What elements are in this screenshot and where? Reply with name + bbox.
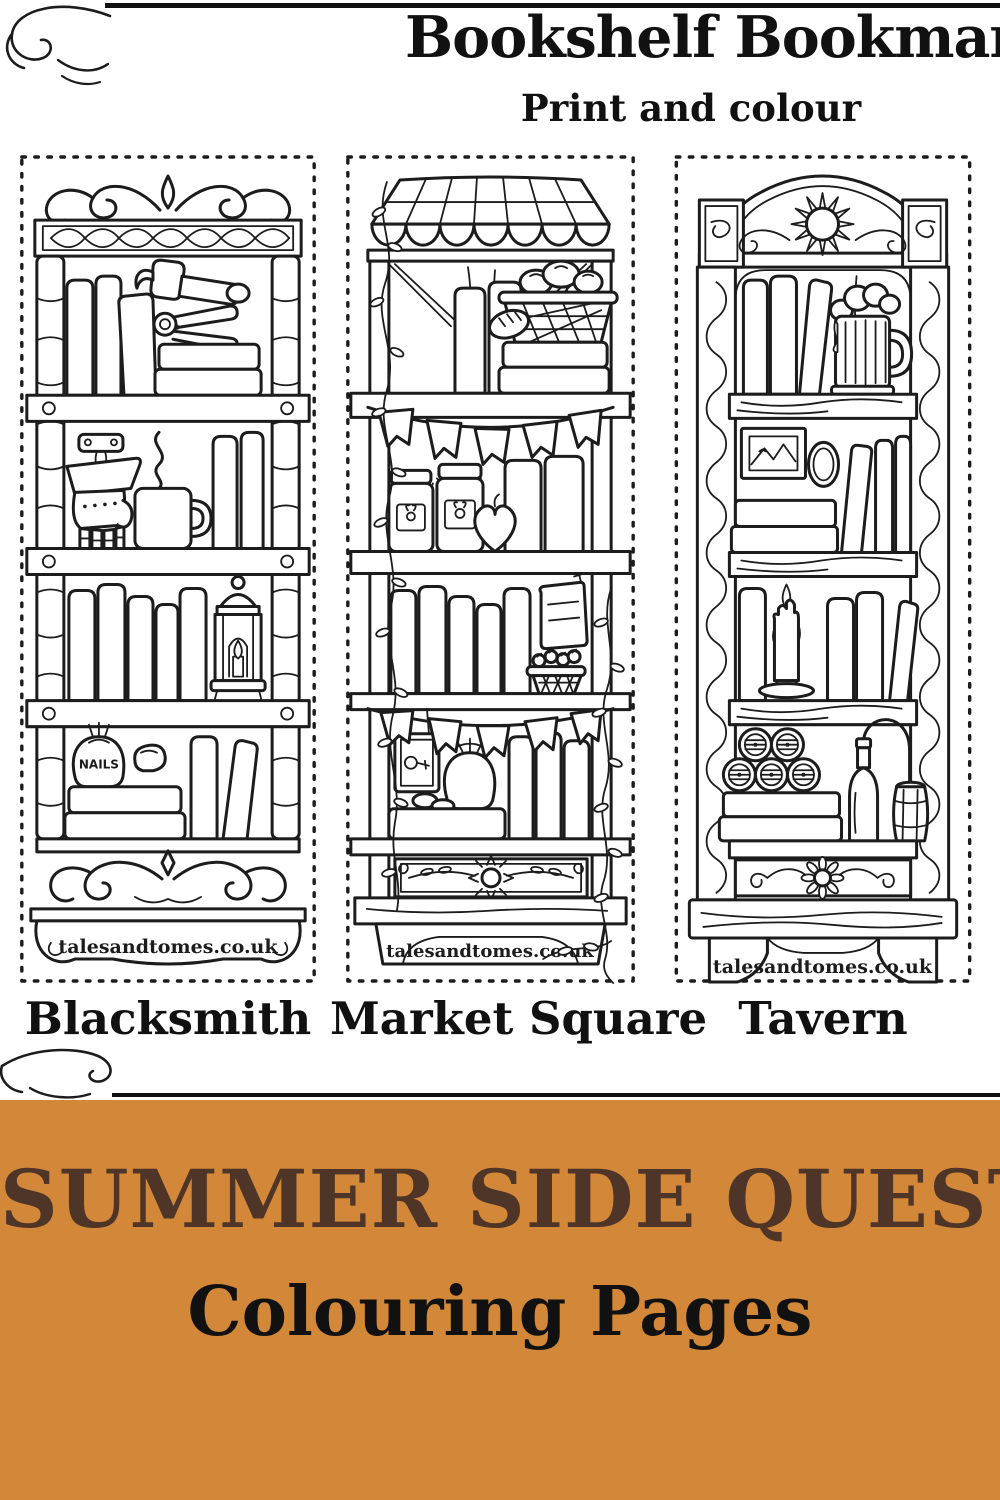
nails-sack-icon: NAILS	[73, 723, 123, 787]
base-pediment: talesandtomes.co.uk	[376, 924, 605, 964]
shelf2-books	[842, 436, 911, 552]
barrel-kegs-icon	[723, 729, 819, 791]
tavern-art: talesandtomes.co.uk	[670, 152, 976, 986]
shelf4-books	[509, 733, 589, 839]
bottom-rule	[112, 1093, 1000, 1097]
shelf2-stacked-books	[731, 500, 837, 552]
shelf-board-1	[27, 395, 309, 421]
mug-icon	[135, 488, 211, 548]
banner-title: SUMMER SIDE QUEST	[0, 1152, 1000, 1246]
shelf-board-4	[729, 841, 916, 858]
shelf4-stacked-books	[719, 793, 841, 841]
shelf1-books	[743, 276, 831, 394]
shelf-board-2	[729, 552, 916, 576]
page-subtitle: Print and colour	[395, 86, 987, 130]
mirror-icon	[808, 442, 838, 486]
sunflower-panel-icon	[735, 857, 910, 899]
footer-banner: SUMMER SIDE QUEST Colouring Pages	[0, 1100, 1000, 1500]
scroll-panel-icon	[51, 851, 286, 903]
scrollwork-crest-icon	[35, 176, 301, 256]
strawberry-basket-icon	[527, 650, 585, 694]
shelf-board-3	[27, 701, 309, 727]
label-tavern: Tavern	[670, 992, 976, 1045]
melting-candle-icon	[759, 585, 813, 698]
base-feet: talesandtomes.co.uk	[709, 938, 936, 982]
banner-subtitle: Colouring Pages	[0, 1272, 1000, 1352]
website-text: talesandtomes.co.uk	[713, 956, 933, 978]
shelf4-books	[191, 737, 257, 839]
shelf4-horizontal-book	[389, 809, 505, 839]
shelf-board-2	[27, 548, 309, 574]
jam-jars-icon	[389, 464, 483, 551]
bookmark-market-square: talesandtomes.co.uk	[341, 152, 640, 986]
floral-panel-icon	[395, 856, 587, 900]
stone-icon	[135, 745, 166, 771]
beer-tankard-icon	[831, 284, 912, 394]
blacksmith-art: NAILS talesandtomes.co.uk	[16, 152, 320, 986]
steam-icon	[156, 432, 163, 488]
label-blacksmith: Blacksmith	[16, 992, 320, 1045]
barrel-icon	[894, 782, 928, 841]
shelf1-books	[67, 276, 156, 395]
shelf3-books	[69, 585, 206, 701]
gauntlet-icon	[67, 458, 141, 558]
scrollwork-footer-icon: talesandtomes.co.uk	[31, 909, 305, 964]
hanging-parchment-icon	[540, 574, 587, 649]
page-title: Bookshelf Bookmarks	[405, 4, 997, 71]
shelf3-books	[391, 587, 530, 694]
base-board	[689, 900, 956, 938]
market-square-art: talesandtomes.co.uk	[341, 152, 640, 986]
shelf-board-1	[729, 394, 916, 418]
corner-flourish-top-left	[0, 4, 112, 104]
label-market-square: Market Square	[330, 992, 654, 1045]
shelf2-books	[505, 456, 583, 551]
nails-sack-label: NAILS	[79, 758, 119, 772]
awning-icon	[372, 177, 609, 245]
shelf2-books	[213, 432, 263, 548]
bread-basket-icon	[486, 261, 617, 343]
bookmark-blacksmith: NAILS talesandtomes.co.uk	[16, 152, 320, 986]
shelf-board-3	[351, 694, 630, 710]
shelf3-books	[739, 589, 917, 701]
shelf4-stacked-books	[65, 787, 185, 839]
shelf1-stacked-books	[499, 342, 609, 393]
shelf1-stacked-books	[155, 344, 261, 395]
website-text: talesandtomes.co.uk	[58, 936, 278, 958]
lantern-icon	[211, 577, 265, 699]
framed-painting-icon	[741, 428, 805, 478]
bookmark-tavern: talesandtomes.co.uk	[670, 152, 976, 986]
